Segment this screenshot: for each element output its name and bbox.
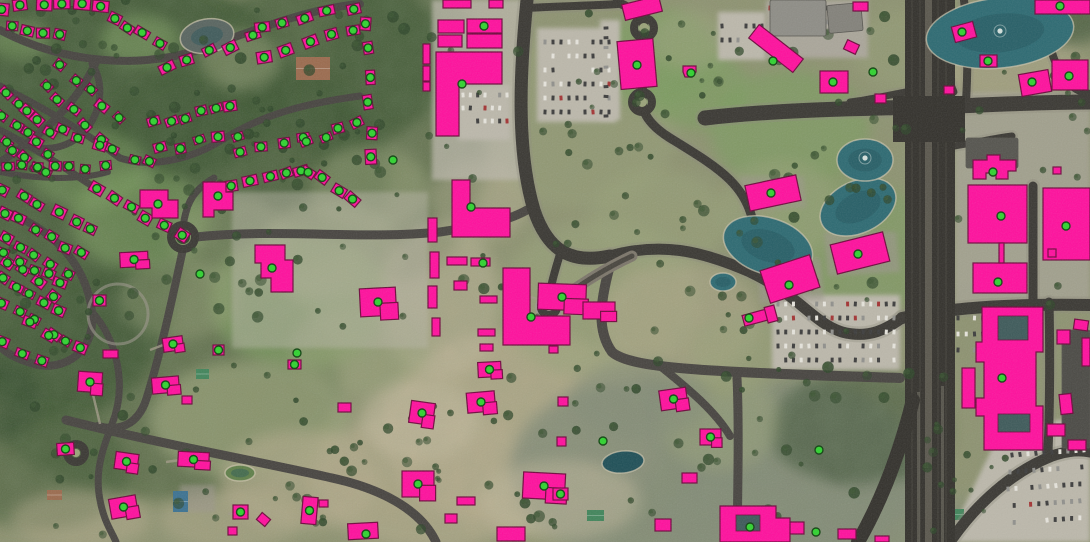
photo-grain-overlay: [0, 0, 1090, 542]
aerial-imagery-viewport: [0, 0, 1090, 542]
building-detection-overlay-map: [0, 0, 1090, 542]
